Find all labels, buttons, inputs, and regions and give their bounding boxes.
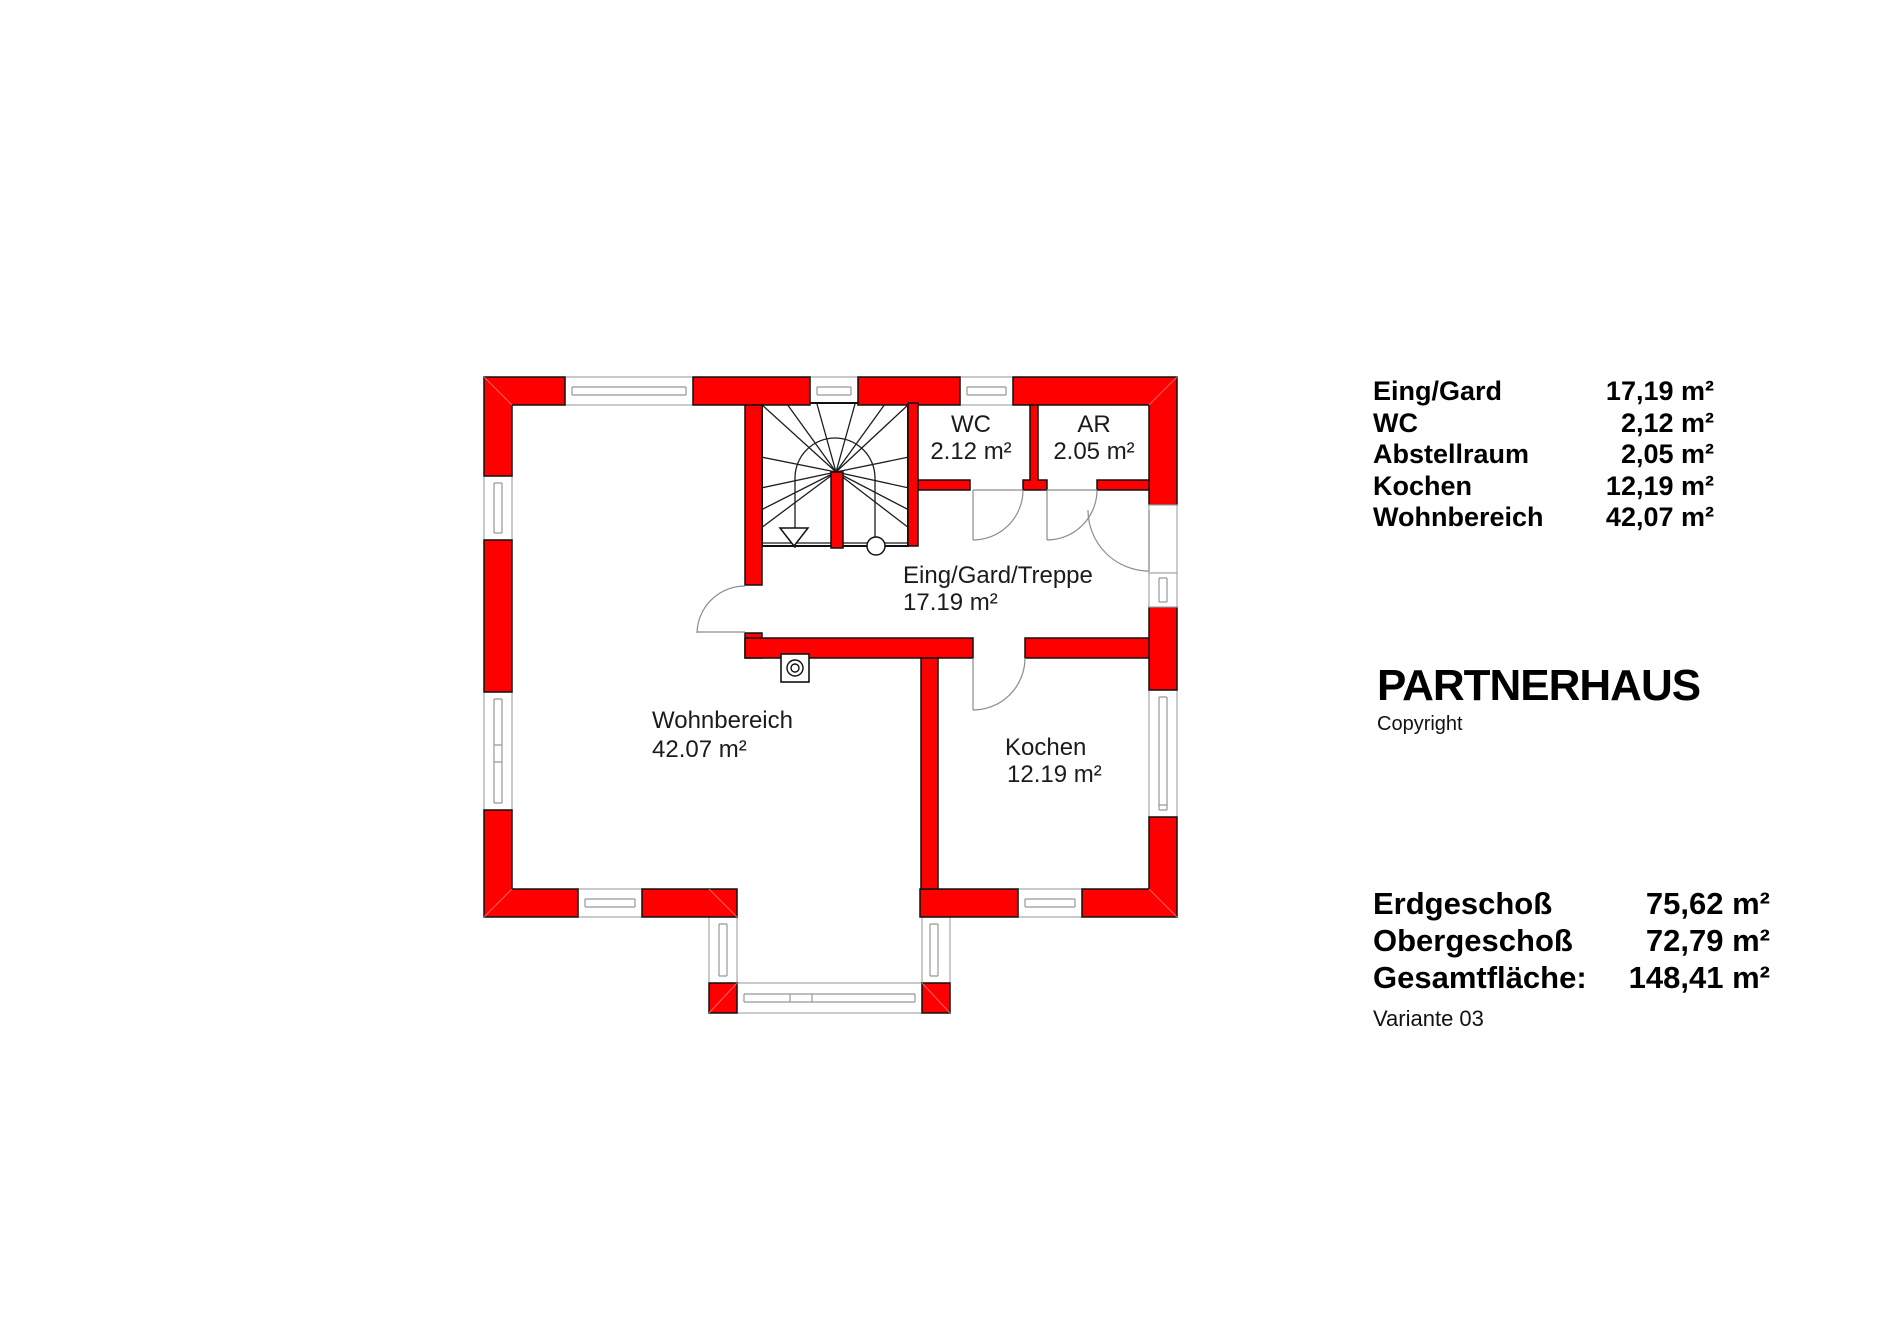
window-bottom-left (578, 889, 642, 917)
staircase (761, 403, 909, 555)
wall-hall-south-west (745, 638, 973, 658)
window-left-upper (484, 476, 512, 540)
legend-label: Abstellraum (1373, 439, 1529, 470)
legend-row: Abstellraum 2,05 m² (1373, 439, 1714, 471)
wall-hall-south-east (1025, 638, 1149, 658)
wall-left-mid (484, 540, 512, 692)
door-wc (973, 490, 1023, 540)
legend-value: 2,12 m² (1621, 408, 1714, 439)
wall-wc-ar-divider (1023, 405, 1047, 490)
window-bay-right (922, 917, 950, 983)
totals-row: Erdgeschoß 75,62 m² (1373, 886, 1770, 923)
room-area-wc: 2.12 m² (930, 438, 1011, 465)
room-area-kochen: 12.19 m² (1007, 761, 1102, 788)
room-label-eingang: Eing/Gard/Treppe (903, 562, 1093, 589)
totals-row: Gesamtfläche: 148,41 m² (1373, 960, 1770, 997)
door-entrance (1088, 505, 1177, 607)
room-area-wohnbereich: 42.07 m² (652, 736, 747, 763)
wall-bottom-kitchen (920, 889, 1018, 917)
brand-copyright: Copyright (1377, 713, 1700, 736)
room-label-kochen: Kochen (1005, 734, 1086, 761)
totals-label: Obergeschoß (1373, 923, 1573, 959)
room-label-wc: WC (951, 411, 991, 438)
window-top-living (565, 377, 693, 405)
wall-living-kitchen (921, 658, 938, 889)
room-area-eingang: 17.19 m² (903, 589, 998, 616)
door-abstellraum (1047, 490, 1097, 540)
totals-value: 148,41 m² (1629, 960, 1770, 996)
brand-block: PARTNERHAUS Copyright (1377, 662, 1700, 736)
wall-corner-bottom-left (484, 810, 578, 917)
legend-value: 17,19 m² (1606, 376, 1714, 407)
wall-stair-wc (908, 403, 918, 546)
legend-value: 42,07 m² (1606, 502, 1714, 533)
totals-label: Gesamtfläche: (1373, 960, 1587, 996)
wall-wc-south (918, 480, 970, 490)
window-bay-left (709, 917, 737, 983)
window-top-wc (960, 377, 1013, 405)
wall-corner-bottom-right (1082, 817, 1177, 917)
door-living (697, 586, 745, 633)
legend-value: 2,05 m² (1621, 439, 1714, 470)
totals-row: Obergeschoß 72,79 m² (1373, 923, 1770, 960)
legend-label: Kochen (1373, 471, 1472, 502)
totals-label: Erdgeschoß (1373, 886, 1552, 922)
window-kitchen-bottom (1018, 889, 1082, 917)
totals-value: 72,79 m² (1646, 923, 1770, 959)
window-bay-front (737, 983, 922, 1013)
stair-newel-wall (831, 472, 843, 548)
room-label-abstellraum: AR (1077, 411, 1110, 438)
wall-ar-south (1097, 480, 1149, 490)
stair-newel-circle (867, 537, 885, 555)
door-kitchen (973, 658, 1025, 710)
wall-top-mid (693, 377, 810, 405)
wall-corner-top-left (484, 377, 565, 476)
room-label-wohnbereich: Wohnbereich (652, 707, 793, 734)
legend-label: Wohnbereich (1373, 502, 1544, 533)
legend-row: Eing/Gard 17,19 m² (1373, 376, 1714, 408)
legend-label: WC (1373, 408, 1418, 439)
variant-label: Variante 03 (1373, 1006, 1770, 1032)
wall-top-wc (858, 377, 960, 405)
legend-value: 12,19 m² (1606, 471, 1714, 502)
wall-stair-west (745, 405, 762, 585)
brand-title: PARTNERHAUS (1377, 662, 1700, 710)
wall-right-mid (1149, 607, 1177, 690)
window-right-kitchen (1149, 690, 1177, 817)
legend-row: Wohnbereich 42,07 m² (1373, 502, 1714, 534)
window-left-lower (484, 692, 512, 810)
room-area-abstellraum: 2.05 m² (1053, 438, 1134, 465)
legend-row: WC 2,12 m² (1373, 408, 1714, 440)
boiler-symbol (781, 654, 809, 682)
legend-label: Eing/Gard (1373, 376, 1502, 407)
room-area-legend: Eing/Gard 17,19 m² WC 2,12 m² Abstellrau… (1373, 376, 1714, 534)
legend-row: Kochen 12,19 m² (1373, 471, 1714, 503)
area-totals: Erdgeschoß 75,62 m² Obergeschoß 72,79 m²… (1373, 886, 1770, 1032)
page: WC 2.12 m² AR 2.05 m² Eing/Gard/Treppe 1… (0, 0, 1900, 1344)
totals-value: 75,62 m² (1646, 886, 1770, 922)
window-top-stair (810, 377, 858, 405)
